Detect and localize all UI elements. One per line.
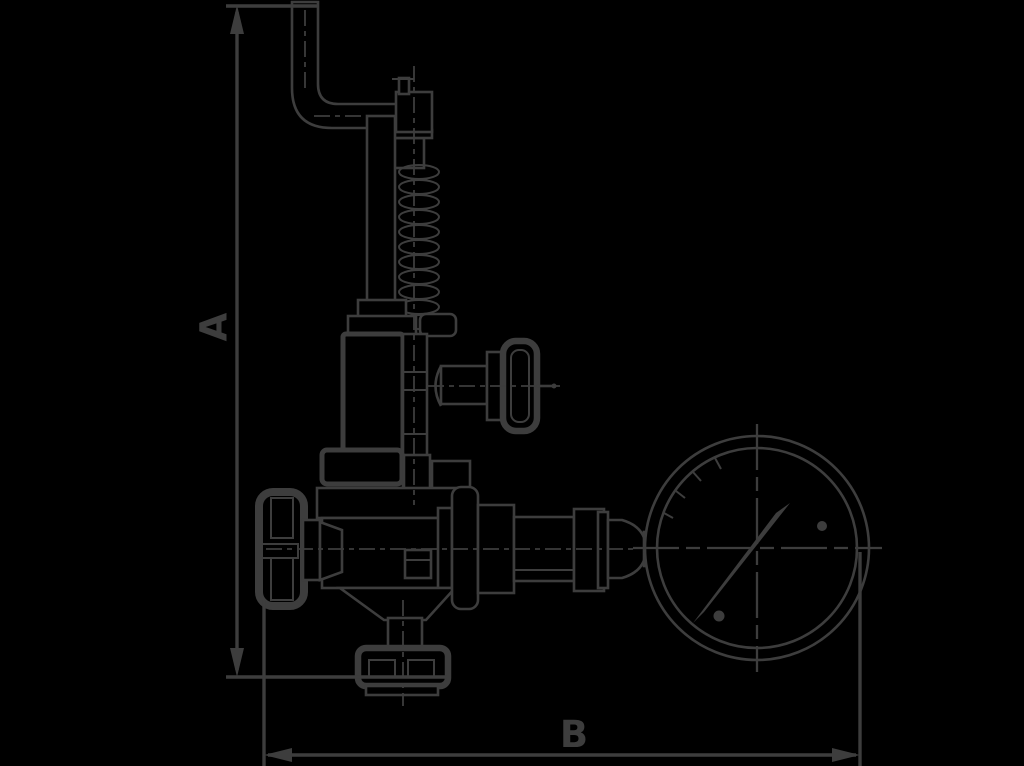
dimension-a-label: A xyxy=(193,312,236,341)
spindle-neck xyxy=(392,138,424,168)
body-right-column xyxy=(438,508,452,588)
spring-coil xyxy=(399,270,439,284)
side-handwheel xyxy=(428,341,560,431)
spring-coil xyxy=(399,240,439,254)
spring-coil xyxy=(399,255,439,269)
gauge-pivot-dot xyxy=(714,611,725,622)
gland-block-2 xyxy=(432,461,470,489)
outlet-flange-slot-right xyxy=(408,660,434,677)
arrow-right-icon xyxy=(832,748,860,762)
gland-band xyxy=(322,450,402,484)
arrow-left-icon xyxy=(264,748,292,762)
pressure-gauge xyxy=(633,424,882,672)
relief-valve xyxy=(259,2,660,706)
test-lever-arm xyxy=(292,2,398,128)
side-stem xyxy=(441,366,487,404)
bonnet-housing xyxy=(343,334,403,452)
dimension-b-label: B xyxy=(560,713,588,756)
body-cone xyxy=(340,588,455,620)
spring-coil xyxy=(399,180,439,194)
spring-coil xyxy=(399,210,439,224)
seat-block xyxy=(405,550,431,578)
gland-flange xyxy=(322,450,470,491)
union-ring xyxy=(598,512,608,588)
lever-tube xyxy=(292,2,398,128)
drawing-canvas: A B xyxy=(0,0,1024,766)
arrow-up-icon xyxy=(230,5,244,34)
arrow-down-icon xyxy=(230,648,244,677)
spring-coil xyxy=(399,195,439,209)
inlet-wheel-slot-top xyxy=(271,498,293,538)
outlet-flange xyxy=(358,600,448,706)
pipe-boss xyxy=(452,487,478,609)
gland-block-1 xyxy=(404,455,430,491)
inlet-stem xyxy=(320,522,342,580)
outlet-flange-slot-left xyxy=(369,660,395,677)
cap-pin xyxy=(399,78,409,94)
valve-technical-drawing: A B xyxy=(0,0,1024,766)
inlet-wheel-slot-bottom xyxy=(271,558,293,600)
inlet-hub xyxy=(303,520,320,580)
spring-coil xyxy=(399,285,439,299)
gauge-piping xyxy=(452,487,660,609)
inlet-wheel-hub-slot xyxy=(262,544,298,558)
gauge-dial-dot xyxy=(817,521,827,531)
spring-coil xyxy=(399,225,439,239)
outlet-flange-lip xyxy=(366,686,438,695)
